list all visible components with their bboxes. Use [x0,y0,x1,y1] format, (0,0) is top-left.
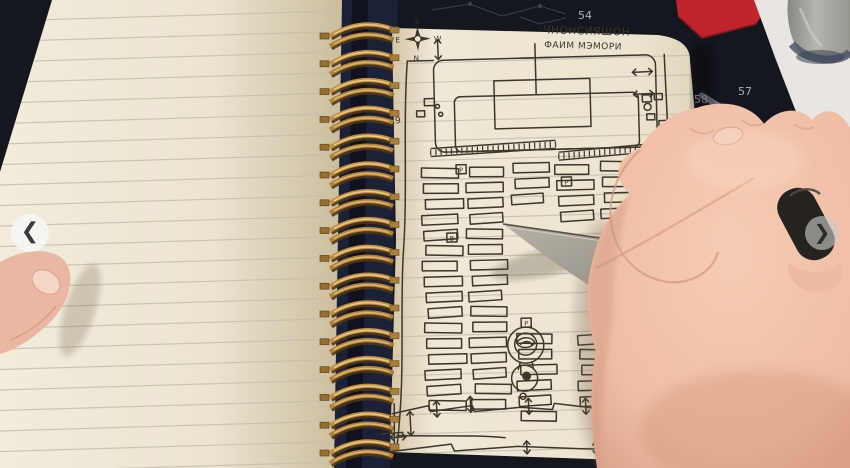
mat-number-57: 57 [738,85,752,98]
left-page [0,0,342,468]
chevron-right-icon: ❯ [814,222,831,242]
hand-highlight [685,130,805,190]
chevron-left-icon: ❮ [21,221,39,243]
map-title-line1: ЧНОНСИЯШОН [543,24,630,38]
compass-s: S [415,17,420,26]
next-button[interactable]: ❯ [805,216,839,250]
photo-notebook-map: 54 57 58 50 ЧНОНСИЯШОН ФАИМ МЭМОРИ S N E [0,0,850,468]
plot-marker: P [564,178,568,186]
compass-e: E [395,35,400,44]
map-title-line2: ФАИМ МЭМОРИ [544,41,622,53]
plot-marker: P [459,166,463,174]
mat-number-54: 54 [578,9,592,22]
prev-button[interactable]: ❮ [11,214,49,252]
photo-viewer: 54 57 58 50 ЧНОНСИЯШОН ФАИМ МЭМОРИ S N E [0,0,850,468]
plot-marker: B [450,234,455,242]
